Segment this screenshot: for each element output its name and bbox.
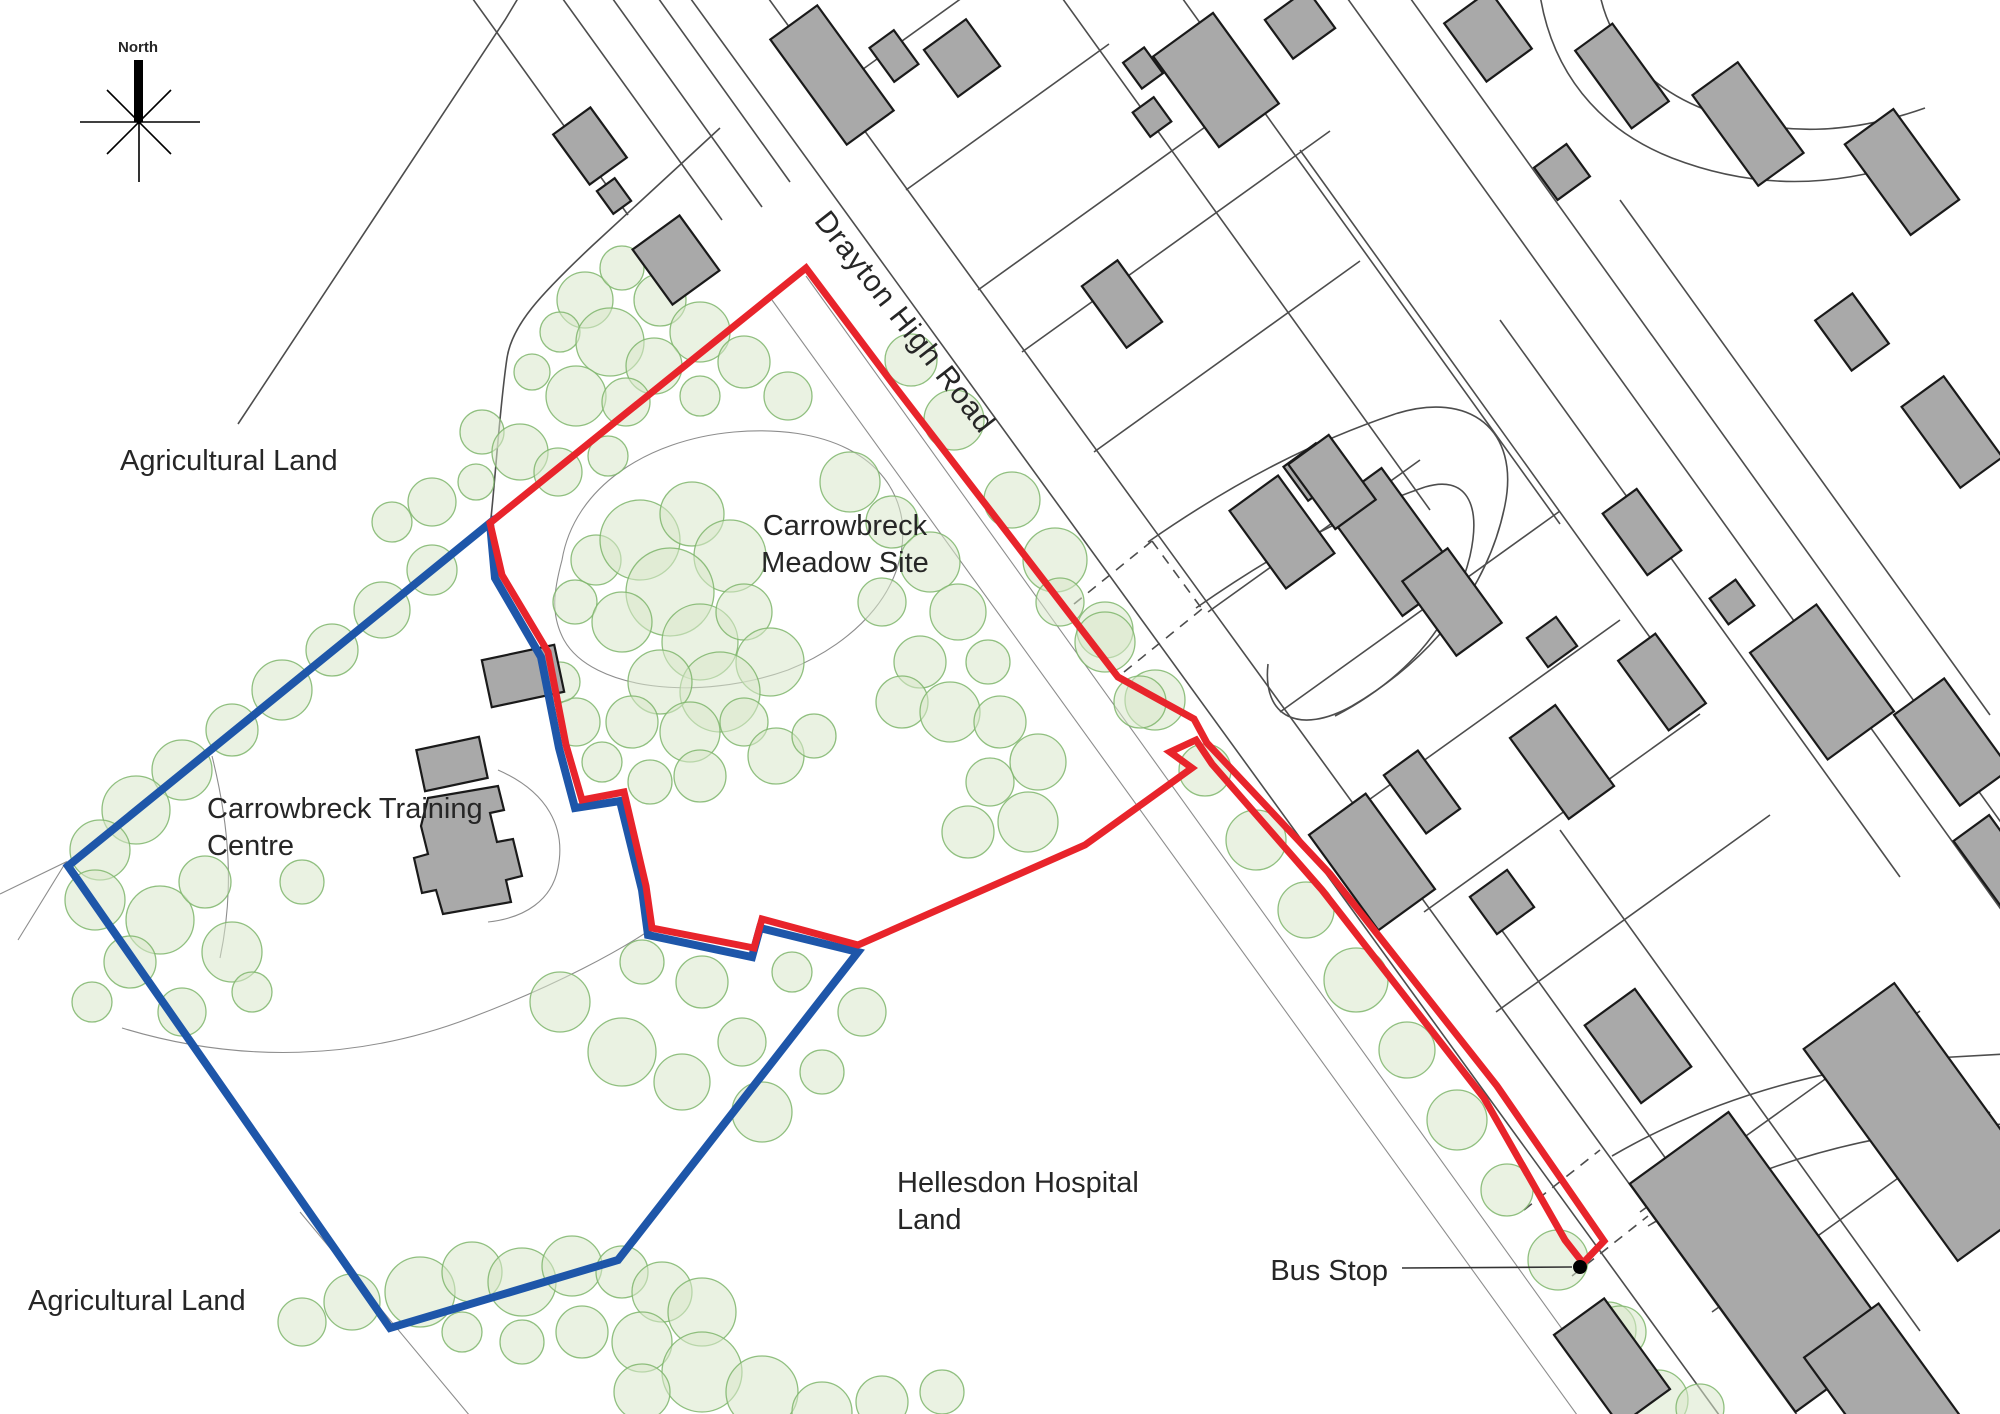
north-arrow: North	[80, 39, 200, 182]
bus-stop-dot	[1573, 1260, 1587, 1274]
label-training-centre-line1: Carrowbreck Training	[207, 793, 483, 825]
bus-stop-leader-line	[1402, 1267, 1572, 1268]
trees-layer	[65, 246, 1724, 1414]
site-plan-svg: North Agricultural Land Agricultural Lan…	[0, 0, 2000, 1414]
label-meadow-site-line1: Carrowbreck	[763, 510, 928, 542]
north-label: North	[118, 39, 158, 56]
label-hospital-land-line1: Hellesdon Hospital	[897, 1167, 1139, 1199]
label-training-centre-line2: Centre	[207, 830, 294, 862]
label-agricultural-land-bottom: Agricultural Land	[28, 1285, 246, 1317]
bus-stop-label: Bus Stop	[1270, 1255, 1388, 1287]
label-agricultural-land-top: Agricultural Land	[120, 445, 338, 477]
label-meadow-site-line2: Meadow Site	[761, 547, 929, 579]
label-hospital-land-line2: Land	[897, 1204, 962, 1236]
site-plan-map: North Agricultural Land Agricultural Lan…	[0, 0, 2000, 1414]
road-edge	[688, 0, 1722, 1414]
north-arrow-bar	[134, 60, 143, 122]
